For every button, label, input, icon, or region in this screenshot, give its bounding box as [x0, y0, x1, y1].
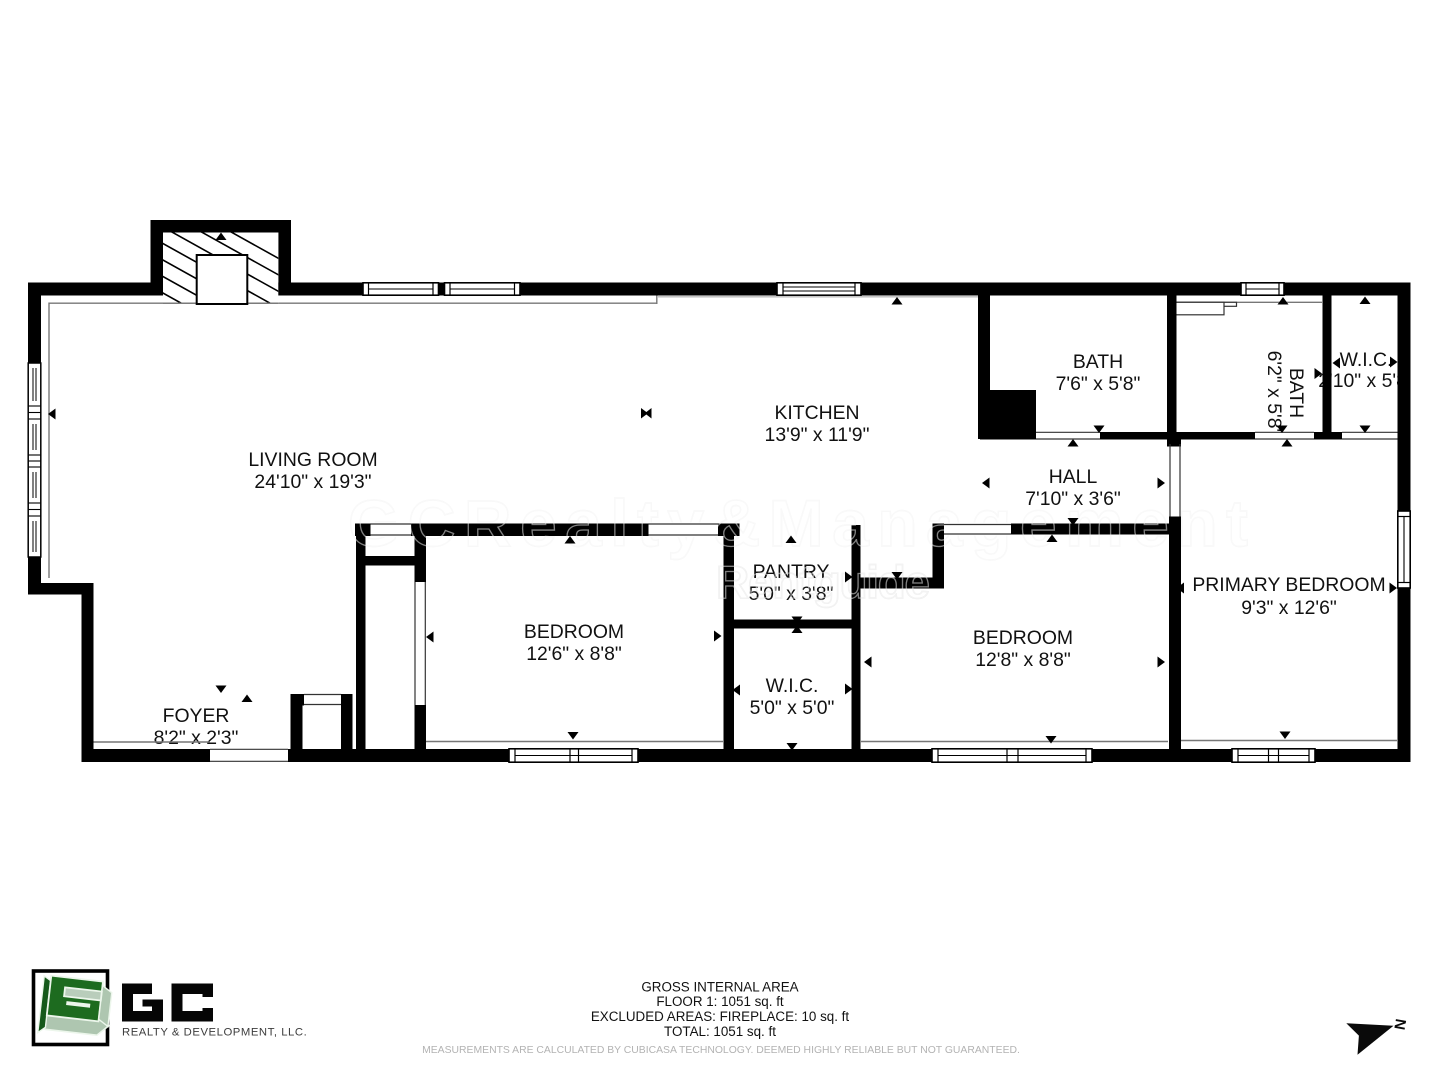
svg-text:GCRealty&Management: GCRealty&Management	[348, 486, 1248, 560]
svg-text:7'6" x 5'8": 7'6" x 5'8"	[1056, 373, 1141, 395]
svg-text:BEDROOM: BEDROOM	[524, 621, 624, 643]
svg-text:FLOOR 1: 1051 sq. ft: FLOOR 1: 1051 sq. ft	[656, 994, 784, 1009]
svg-text:W.I.C.: W.I.C.	[766, 675, 819, 697]
svg-text:8'2" x 2'3": 8'2" x 2'3"	[154, 727, 239, 749]
svg-text:13'9" x 11'9": 13'9" x 11'9"	[765, 424, 870, 446]
svg-text:9'3" x 12'6": 9'3" x 12'6"	[1241, 597, 1337, 619]
svg-text:KITCHEN: KITCHEN	[774, 402, 859, 424]
svg-text:Rentguide: Rentguide	[716, 556, 930, 608]
svg-text:LIVING ROOM: LIVING ROOM	[248, 449, 377, 471]
svg-text:5'0" x 5'0": 5'0" x 5'0"	[750, 697, 835, 719]
svg-text:TOTAL: 1051 sq. ft: TOTAL: 1051 sq. ft	[664, 1024, 776, 1039]
svg-text:GROSS INTERNAL AREA: GROSS INTERNAL AREA	[641, 980, 798, 995]
svg-text:PRIMARY BEDROOM: PRIMARY BEDROOM	[1192, 574, 1385, 596]
svg-text:FOYER: FOYER	[163, 705, 230, 727]
svg-text:W.I.C.: W.I.C.	[1340, 349, 1393, 371]
svg-text:6'2" x 5'8": 6'2" x 5'8"	[1263, 351, 1285, 436]
svg-text:12'6" x 8'8": 12'6" x 8'8"	[526, 643, 622, 665]
svg-text:12'8" x 8'8": 12'8" x 8'8"	[975, 649, 1071, 671]
svg-text:BATH: BATH	[1285, 368, 1307, 418]
svg-text:BATH: BATH	[1073, 351, 1123, 373]
svg-text:BEDROOM: BEDROOM	[973, 627, 1073, 649]
svg-text:REALTY & DEVELOPMENT, LLC.: REALTY & DEVELOPMENT, LLC.	[122, 1027, 307, 1039]
svg-text:HALL: HALL	[1049, 466, 1098, 488]
svg-text:MEASUREMENTS ARE CALCULATED BY: MEASUREMENTS ARE CALCULATED BY CUBICASA …	[422, 1045, 1020, 1056]
svg-text:EXCLUDED AREAS: FIREPLACE: 10: EXCLUDED AREAS: FIREPLACE: 10 sq. ft	[591, 1009, 850, 1024]
